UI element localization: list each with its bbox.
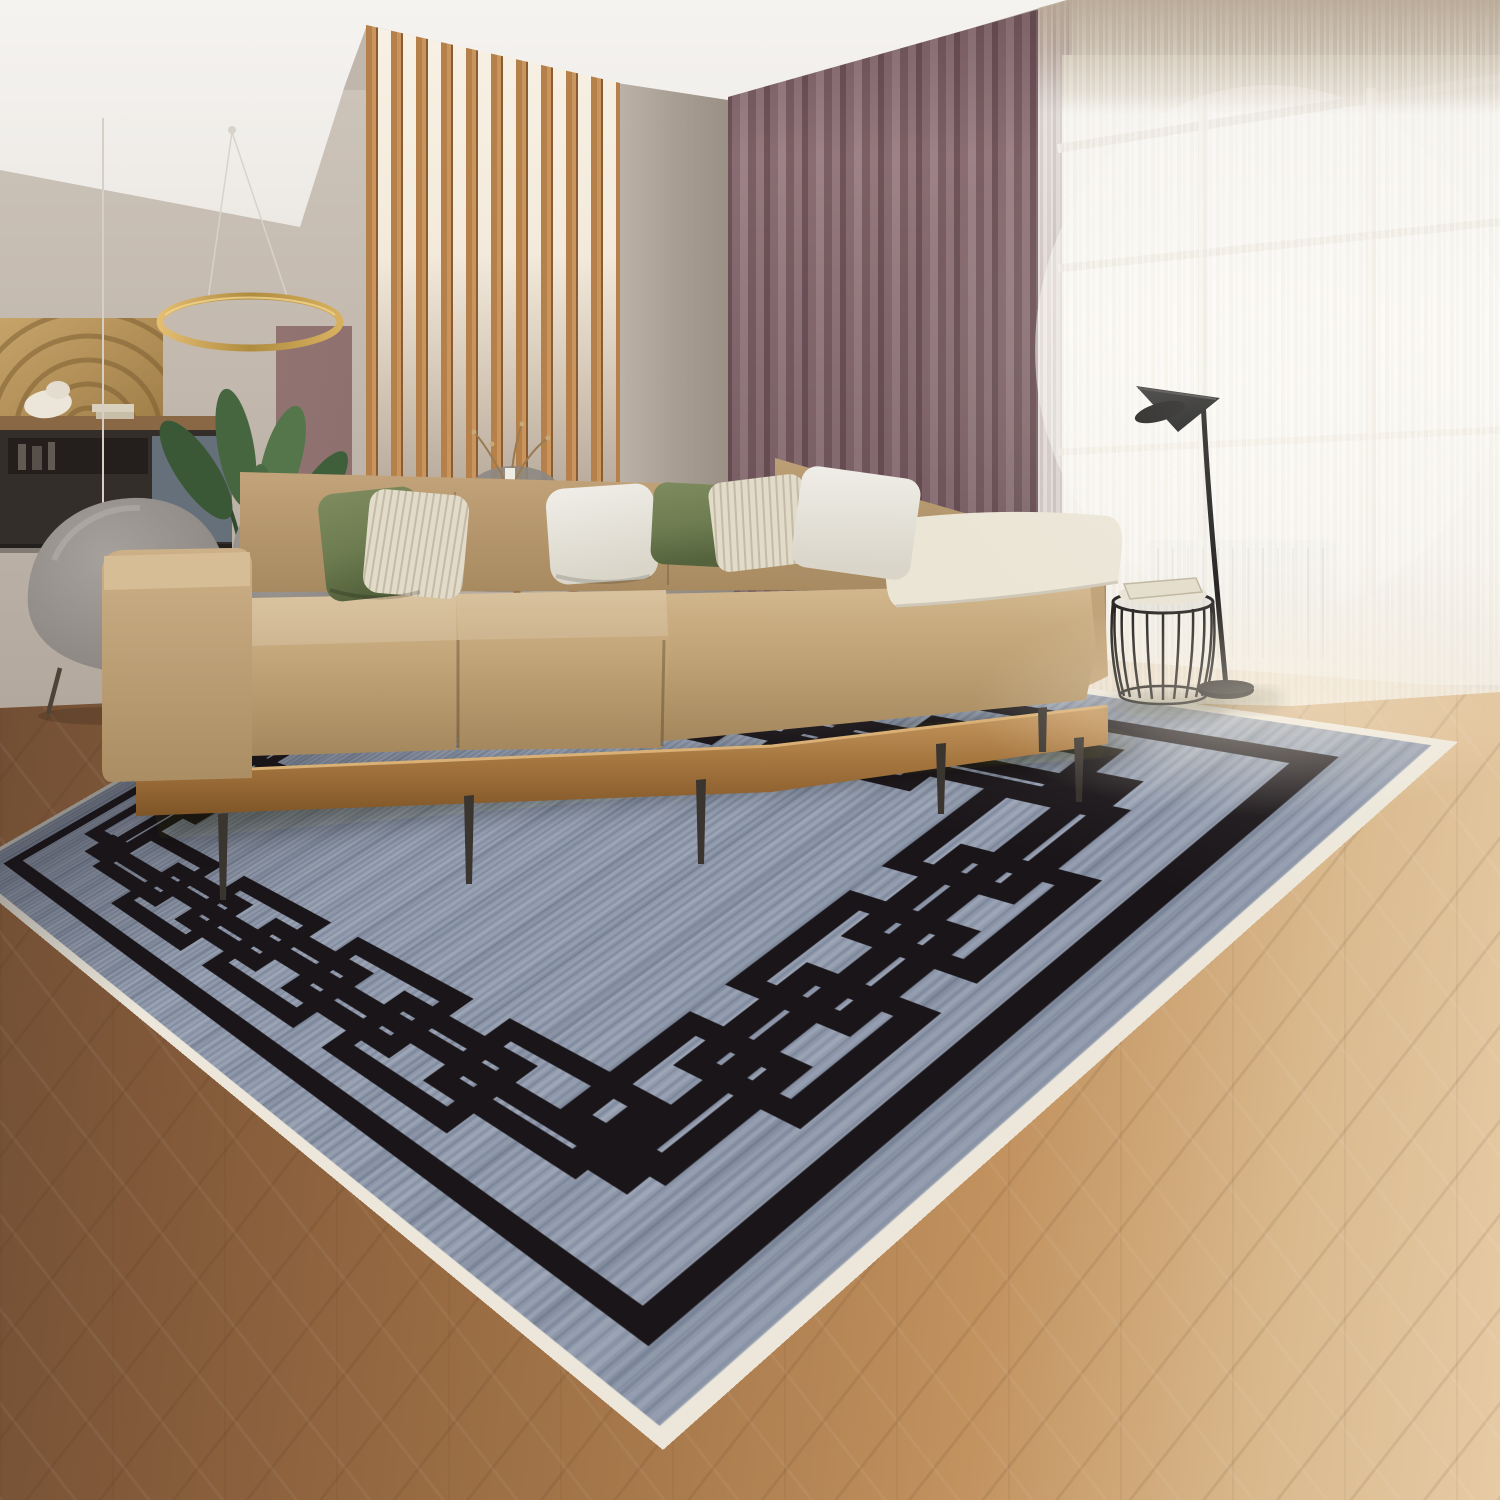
pillow-white-1 xyxy=(545,482,659,585)
furniture-layer xyxy=(0,0,1500,1500)
living-room-scene xyxy=(0,0,1500,1500)
pillow-striped-1 xyxy=(362,488,471,600)
pillow-white-2 xyxy=(789,464,922,582)
